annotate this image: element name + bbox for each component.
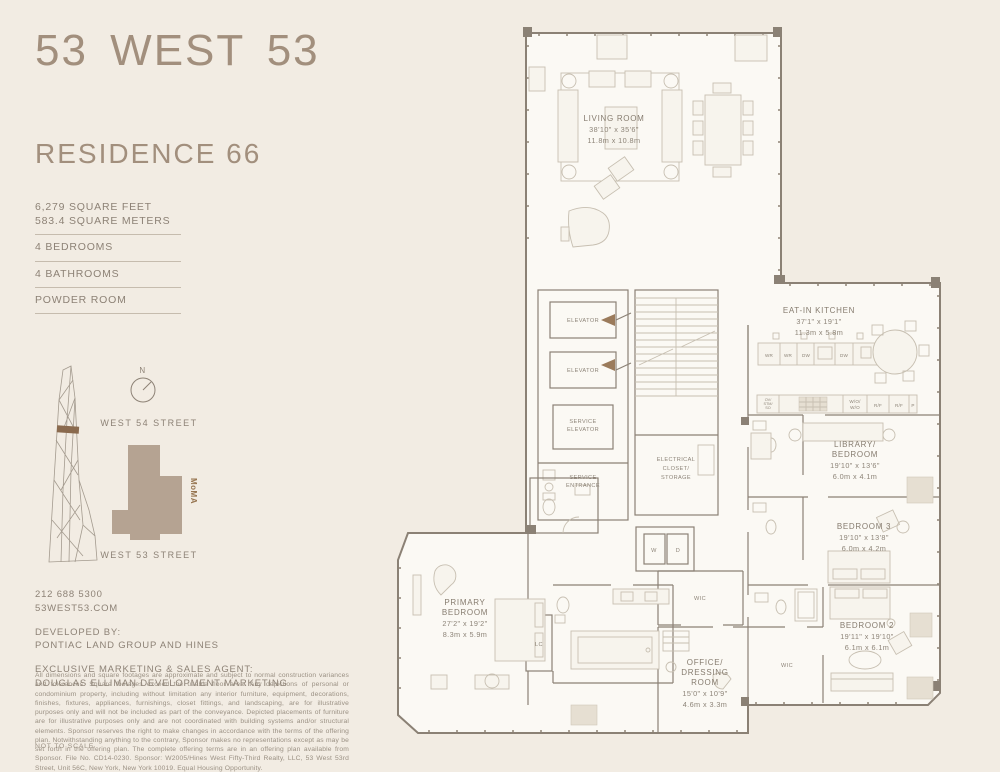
service-elevator-label: SERVICE xyxy=(569,419,596,425)
svg-text:P: P xyxy=(911,403,914,408)
svg-text:OFFICE/: OFFICE/ xyxy=(687,658,724,667)
svg-text:R/F: R/F xyxy=(874,403,882,408)
elevator-label-1: ELEVATOR xyxy=(567,318,599,324)
living-room-label: LIVING ROOM xyxy=(583,114,644,123)
svg-text:6.0m x 4.1m: 6.0m x 4.1m xyxy=(833,472,878,481)
range xyxy=(799,397,827,411)
website-link[interactable]: 53WEST53.COM xyxy=(35,603,118,614)
floor-plan: ELECTRICAL CLOSET/ STORAGE WR WR DW DW xyxy=(383,15,958,760)
svg-text:ELEVATOR: ELEVATOR xyxy=(567,427,599,433)
svg-text:6.0m x 4.2m: 6.0m x 4.2m xyxy=(842,544,887,553)
svg-text:WR: WR xyxy=(784,353,793,358)
svg-text:ELECTRICAL: ELECTRICAL xyxy=(657,457,696,463)
svg-text:19'10" x 13'8": 19'10" x 13'8" xyxy=(839,533,889,542)
location-map-svg: N WEST 54 STREET MoMA WEST 53 STREET xyxy=(23,360,253,575)
fact-powder-room: POWDER ROOM xyxy=(35,288,181,314)
moma-label: MoMA xyxy=(189,478,198,504)
svg-text:CLOSET/: CLOSET/ xyxy=(663,466,690,472)
wall-oven-label: W/O/ xyxy=(849,399,861,404)
wine-fridge-label: WR xyxy=(765,353,774,358)
building-footprint xyxy=(112,445,182,540)
svg-text:4.6m x 3.3m: 4.6m x 3.3m xyxy=(683,700,728,709)
developed-by-label: DEVELOPED BY: xyxy=(35,626,288,640)
legal-disclaimer: All dimensions and square footages are a… xyxy=(35,671,349,772)
electrical-label: ELECTRICAL xyxy=(657,457,696,463)
office-label: OFFICE/ xyxy=(687,658,724,667)
appliance-wall xyxy=(757,395,917,413)
svg-text:W/O/: W/O/ xyxy=(849,399,861,404)
svg-text:LIBRARY/: LIBRARY/ xyxy=(834,440,876,449)
fridge-label: R/F xyxy=(874,403,882,408)
svg-text:11.3m x 5.8m: 11.3m x 5.8m xyxy=(795,328,843,337)
phone: 212 688 5300 xyxy=(35,588,288,602)
svg-text:D: D xyxy=(676,548,680,554)
bedroom2-label: BEDROOM 2 xyxy=(840,621,894,630)
fact-area: 6,279 SQUARE FEET 583.4 SQUARE METERS xyxy=(35,200,181,235)
svg-text:LC: LC xyxy=(535,642,543,648)
svg-text:SERVICE: SERVICE xyxy=(569,419,596,425)
developer-name: PONTIAC LAND GROUP AND HINES xyxy=(35,639,288,653)
compass: N xyxy=(131,366,155,402)
svg-text:BEDROOM: BEDROOM xyxy=(442,608,488,617)
svg-text:BEDROOM 2: BEDROOM 2 xyxy=(840,621,894,630)
residence-floor-band xyxy=(57,425,79,434)
svg-text:11.8m x 10.8m: 11.8m x 10.8m xyxy=(588,136,641,145)
street-west-54: WEST 54 STREET xyxy=(100,418,197,428)
svg-text:19'10" x 13'6": 19'10" x 13'6" xyxy=(830,461,880,470)
svg-text:SO: SO xyxy=(765,406,771,410)
residence-title: RESIDENCE 66 xyxy=(35,138,261,170)
svg-text:PRIMARY: PRIMARY xyxy=(444,598,485,607)
svg-text:ELEVATOR: ELEVATOR xyxy=(567,318,599,324)
svg-text:ELEVATOR: ELEVATOR xyxy=(567,368,599,374)
svg-text:19'11" x 19'10": 19'11" x 19'10" xyxy=(840,632,894,641)
svg-text:DW: DW xyxy=(802,353,811,358)
washer-label: W xyxy=(651,548,657,554)
not-to-scale-note: NOT TO SCALE xyxy=(35,743,94,750)
compass-n: N xyxy=(139,366,146,375)
fact-bathrooms: 4 BATHROOMS xyxy=(35,262,181,288)
svg-text:WR: WR xyxy=(765,353,774,358)
svg-text:38'10" x 35'6": 38'10" x 35'6" xyxy=(589,125,639,134)
svg-text:SERVICE: SERVICE xyxy=(569,475,596,481)
kitchen-label: EAT-IN KITCHEN xyxy=(783,306,855,315)
library-label: LIBRARY/ xyxy=(834,440,876,449)
svg-text:6.1m x 6.1m: 6.1m x 6.1m xyxy=(845,643,890,652)
fact-area-ft: 6,279 SQUARE FEET xyxy=(35,200,181,214)
svg-text:DRESSING: DRESSING xyxy=(681,668,728,677)
svg-text:W/O: W/O xyxy=(850,405,860,410)
svg-text:ROOM: ROOM xyxy=(691,678,719,687)
svg-text:BEDROOM 3: BEDROOM 3 xyxy=(837,522,891,531)
fact-bedrooms: 4 BEDROOMS xyxy=(35,235,181,261)
bedroom3-label: BEDROOM 3 xyxy=(837,522,891,531)
svg-text:27'2" x 19'2": 27'2" x 19'2" xyxy=(442,619,487,628)
svg-text:ENTRANCE: ENTRANCE xyxy=(566,483,600,489)
svg-text:8.3m x 5.9m: 8.3m x 5.9m xyxy=(443,630,488,639)
wic-label-2: WIC xyxy=(781,663,793,669)
street-west-53: WEST 53 STREET xyxy=(100,550,197,560)
svg-text:WIC: WIC xyxy=(694,596,706,602)
svg-text:LIVING ROOM: LIVING ROOM xyxy=(583,114,644,123)
svg-text:WIC: WIC xyxy=(781,663,793,669)
wic-label-1: WIC xyxy=(694,596,706,602)
dishwasher-label: DW xyxy=(802,353,811,358)
svg-text:EAT-IN KITCHEN: EAT-IN KITCHEN xyxy=(783,306,855,315)
svg-text:R/F: R/F xyxy=(895,403,903,408)
svg-text:STORAGE: STORAGE xyxy=(661,475,691,481)
svg-text:W: W xyxy=(651,548,657,554)
fact-area-m: 583.4 SQUARE METERS xyxy=(35,214,181,228)
brand-logo: 53 WEST 53 xyxy=(35,26,320,76)
page: 53 WEST 53 RESIDENCE 66 6,279 SQUARE FEE… xyxy=(0,0,1000,772)
svg-text:37'1" x 19'1": 37'1" x 19'1" xyxy=(796,317,841,326)
svg-text:DW: DW xyxy=(840,353,849,358)
service-entrance-label: SERVICE xyxy=(569,475,596,481)
facts-list: 6,279 SQUARE FEET 583.4 SQUARE METERS 4 … xyxy=(35,200,181,314)
primary-bedroom-label: PRIMARY xyxy=(444,598,485,607)
linen-closet-label: LC xyxy=(535,642,543,648)
piano xyxy=(569,207,610,247)
svg-text:BEDROOM: BEDROOM xyxy=(832,450,878,459)
pantry-label: P xyxy=(911,403,914,408)
dryer-label: D xyxy=(676,548,680,554)
location-map: N WEST 54 STREET MoMA WEST 53 STREET xyxy=(23,360,253,575)
elevator-label-2: ELEVATOR xyxy=(567,368,599,374)
svg-text:15'0" x 10'9": 15'0" x 10'9" xyxy=(682,689,727,698)
tower-silhouette xyxy=(49,366,97,562)
